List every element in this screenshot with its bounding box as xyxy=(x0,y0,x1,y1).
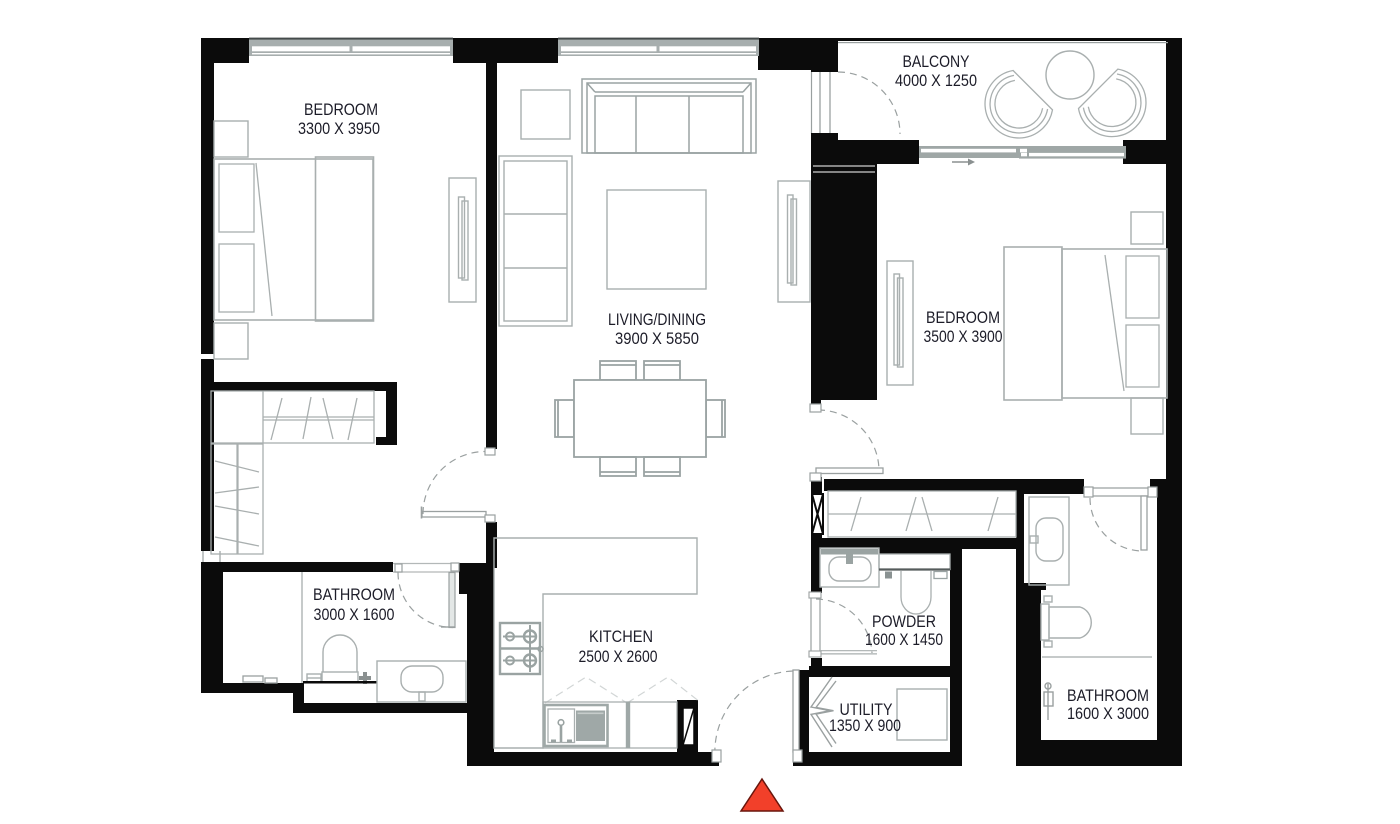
svg-text:BATHROOM: BATHROOM xyxy=(1067,686,1149,705)
svg-text:LIVING/DINING: LIVING/DINING xyxy=(608,310,706,329)
svg-text:3500 X 3900: 3500 X 3900 xyxy=(924,327,1003,346)
svg-text:1600 X 1450: 1600 X 1450 xyxy=(865,630,943,649)
svg-text:4000 X 1250: 4000 X 1250 xyxy=(895,71,977,90)
svg-text:POWDER: POWDER xyxy=(872,612,936,631)
svg-text:3900 X 5850: 3900 X 5850 xyxy=(615,329,699,348)
svg-text:3000 X 1600: 3000 X 1600 xyxy=(314,605,395,624)
svg-text:BEDROOM: BEDROOM xyxy=(926,308,1000,327)
svg-text:3300 X 3950: 3300 X 3950 xyxy=(298,119,380,138)
svg-text:BEDROOM: BEDROOM xyxy=(304,100,378,119)
svg-text:1600 X 3000: 1600 X 3000 xyxy=(1067,704,1149,723)
svg-text:KITCHEN: KITCHEN xyxy=(589,627,653,646)
svg-text:BALCONY: BALCONY xyxy=(903,52,970,71)
svg-text:2500 X 2600: 2500 X 2600 xyxy=(579,647,658,666)
svg-text:BATHROOM: BATHROOM xyxy=(313,585,395,604)
svg-text:1350 X 900: 1350 X 900 xyxy=(829,716,901,735)
